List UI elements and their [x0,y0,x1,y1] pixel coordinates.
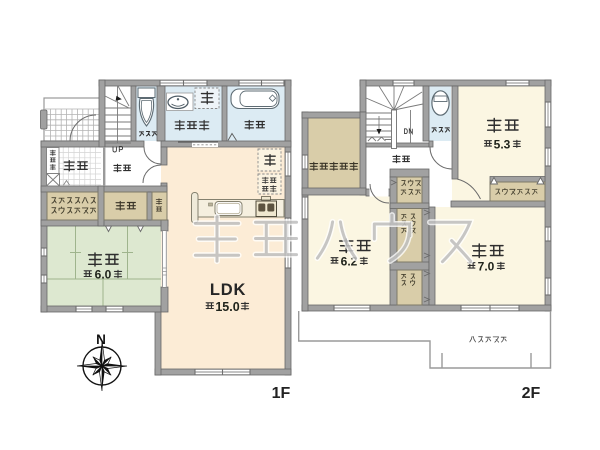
svg-text:2F: 2F [522,385,541,402]
svg-text:5.3: 5.3 [494,138,511,152]
svg-text:6.0: 6.0 [95,268,112,282]
svg-text:1F: 1F [272,385,291,402]
svg-text:15.0: 15.0 [215,300,239,314]
svg-text:LDK: LDK [210,281,246,299]
svg-text:N: N [96,332,106,347]
svg-text:7.0: 7.0 [478,260,495,274]
